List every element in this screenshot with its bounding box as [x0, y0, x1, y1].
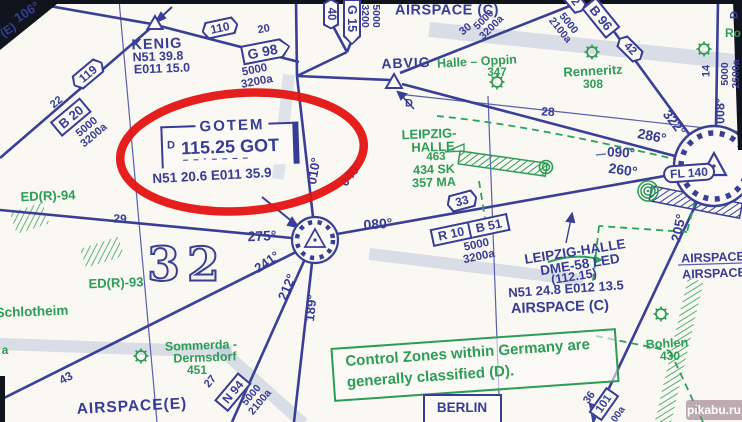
r10-altitudes: 5000 3200a: [460, 237, 496, 267]
airway-badge-110: 110: [200, 15, 240, 40]
gotem-dme-prefix: D: [167, 140, 175, 151]
radial-241-label: 241°: [252, 249, 282, 275]
radial-080-label: 080°: [363, 216, 393, 233]
renneritz-elev: 308: [583, 78, 603, 90]
berlin-label: BERLIN: [437, 401, 487, 415]
radial-008-label: 008°: [715, 98, 728, 124]
airspace-e-label: AIRSPACE(E): [76, 396, 187, 418]
distance-28: 28: [541, 105, 555, 118]
distance-29: 29: [113, 213, 127, 226]
radial-090-label: 090°: [607, 145, 636, 160]
airspace-right-label-2: AIRSPACE: [682, 266, 742, 281]
distance-14: 14: [701, 65, 712, 77]
restricted-edr93-label: ED(R)-93: [88, 275, 143, 290]
radial-106-label: 106°: [12, 0, 42, 25]
watermark: pikabu.ru: [686, 400, 742, 420]
dme-arrow-label: D: [405, 98, 413, 109]
radial-286-label: 286°: [636, 126, 667, 146]
airspace-e-corner-label: (E): [0, 20, 18, 39]
leipzig-dme-coords: N51 24.8 E012 13.5: [508, 278, 624, 300]
airway-badge-b96: B 96: [581, 0, 621, 39]
radial-212-label: 212°: [276, 272, 299, 302]
radial-275-label: 275°: [247, 228, 276, 244]
airspace-right-label-1: AIRSPACE: [681, 250, 742, 265]
schlotheim-label: Schlotheim: [0, 304, 69, 321]
radial-040-label: 040°: [337, 159, 364, 189]
berlin-box: BERLIN: [423, 394, 502, 422]
leipzig-freq-2: 357 MA: [412, 176, 456, 191]
gotem-name: GOTEM: [195, 117, 268, 135]
vfr-point-icon: [638, 181, 658, 201]
g15-altitudes: 5000 3200: [359, 4, 381, 27]
radial-205-label: 205°: [669, 213, 689, 243]
kenig-lon: E011 15.0: [134, 62, 191, 77]
restricted-edr94-label: ED(R)-94: [20, 188, 75, 203]
glider-site-icons: [134, 42, 712, 364]
distance-43: 43: [57, 369, 75, 386]
abvig-name: ABVIG: [381, 55, 431, 71]
sommerda-elev: 451: [187, 364, 207, 376]
gotem-vor-rose: [292, 217, 338, 263]
aeronautical-chart: 106° (E) KENIG N51 39.8 E011 15.0 110 11…: [0, 0, 742, 422]
gotem-coordinates: N51 20.6 E011 35.9: [152, 166, 272, 186]
control-zones-note-box: Control Zones within Germany are general…: [330, 328, 619, 402]
b96-altitudes: 5000 2100a: [546, 9, 581, 45]
grid-number-32: 32: [147, 242, 226, 291]
g98-distance: 20: [257, 23, 271, 37]
g98-altitudes: 5000 3200a: [238, 62, 274, 92]
airway-badge-33: 33: [445, 188, 480, 214]
halle-oppin-elev: 347: [487, 68, 506, 80]
airspace-c-mid-label: AIRSPACE (C): [511, 299, 609, 317]
watermark-text: pikabu.ru: [687, 403, 741, 417]
ro-place-fragment: Ro: [725, 27, 741, 39]
r008-altitudes: 5000 2600a: [720, 59, 742, 88]
fl140-limit-badge: FL 140: [663, 162, 716, 184]
place-fragment-a: a: [2, 344, 9, 356]
radial-189-label: 189°: [303, 294, 319, 322]
a101-altitude-fragment: 00a: [610, 405, 628, 422]
radial-010-label: 010°: [305, 157, 323, 186]
bohlen-elev: 430: [660, 350, 680, 362]
radial-260-label: 260°: [608, 161, 639, 179]
airway-badge-b51: B 51: [469, 213, 510, 239]
airway-badge-40: 40: [323, 0, 339, 29]
airway-badge-119: 119: [68, 55, 108, 93]
airway-badge-42: 42: [613, 32, 646, 65]
d-top-label: D: [729, 11, 740, 19]
reporting-point-icon: [540, 161, 553, 174]
b20-distance: 22: [49, 95, 66, 112]
